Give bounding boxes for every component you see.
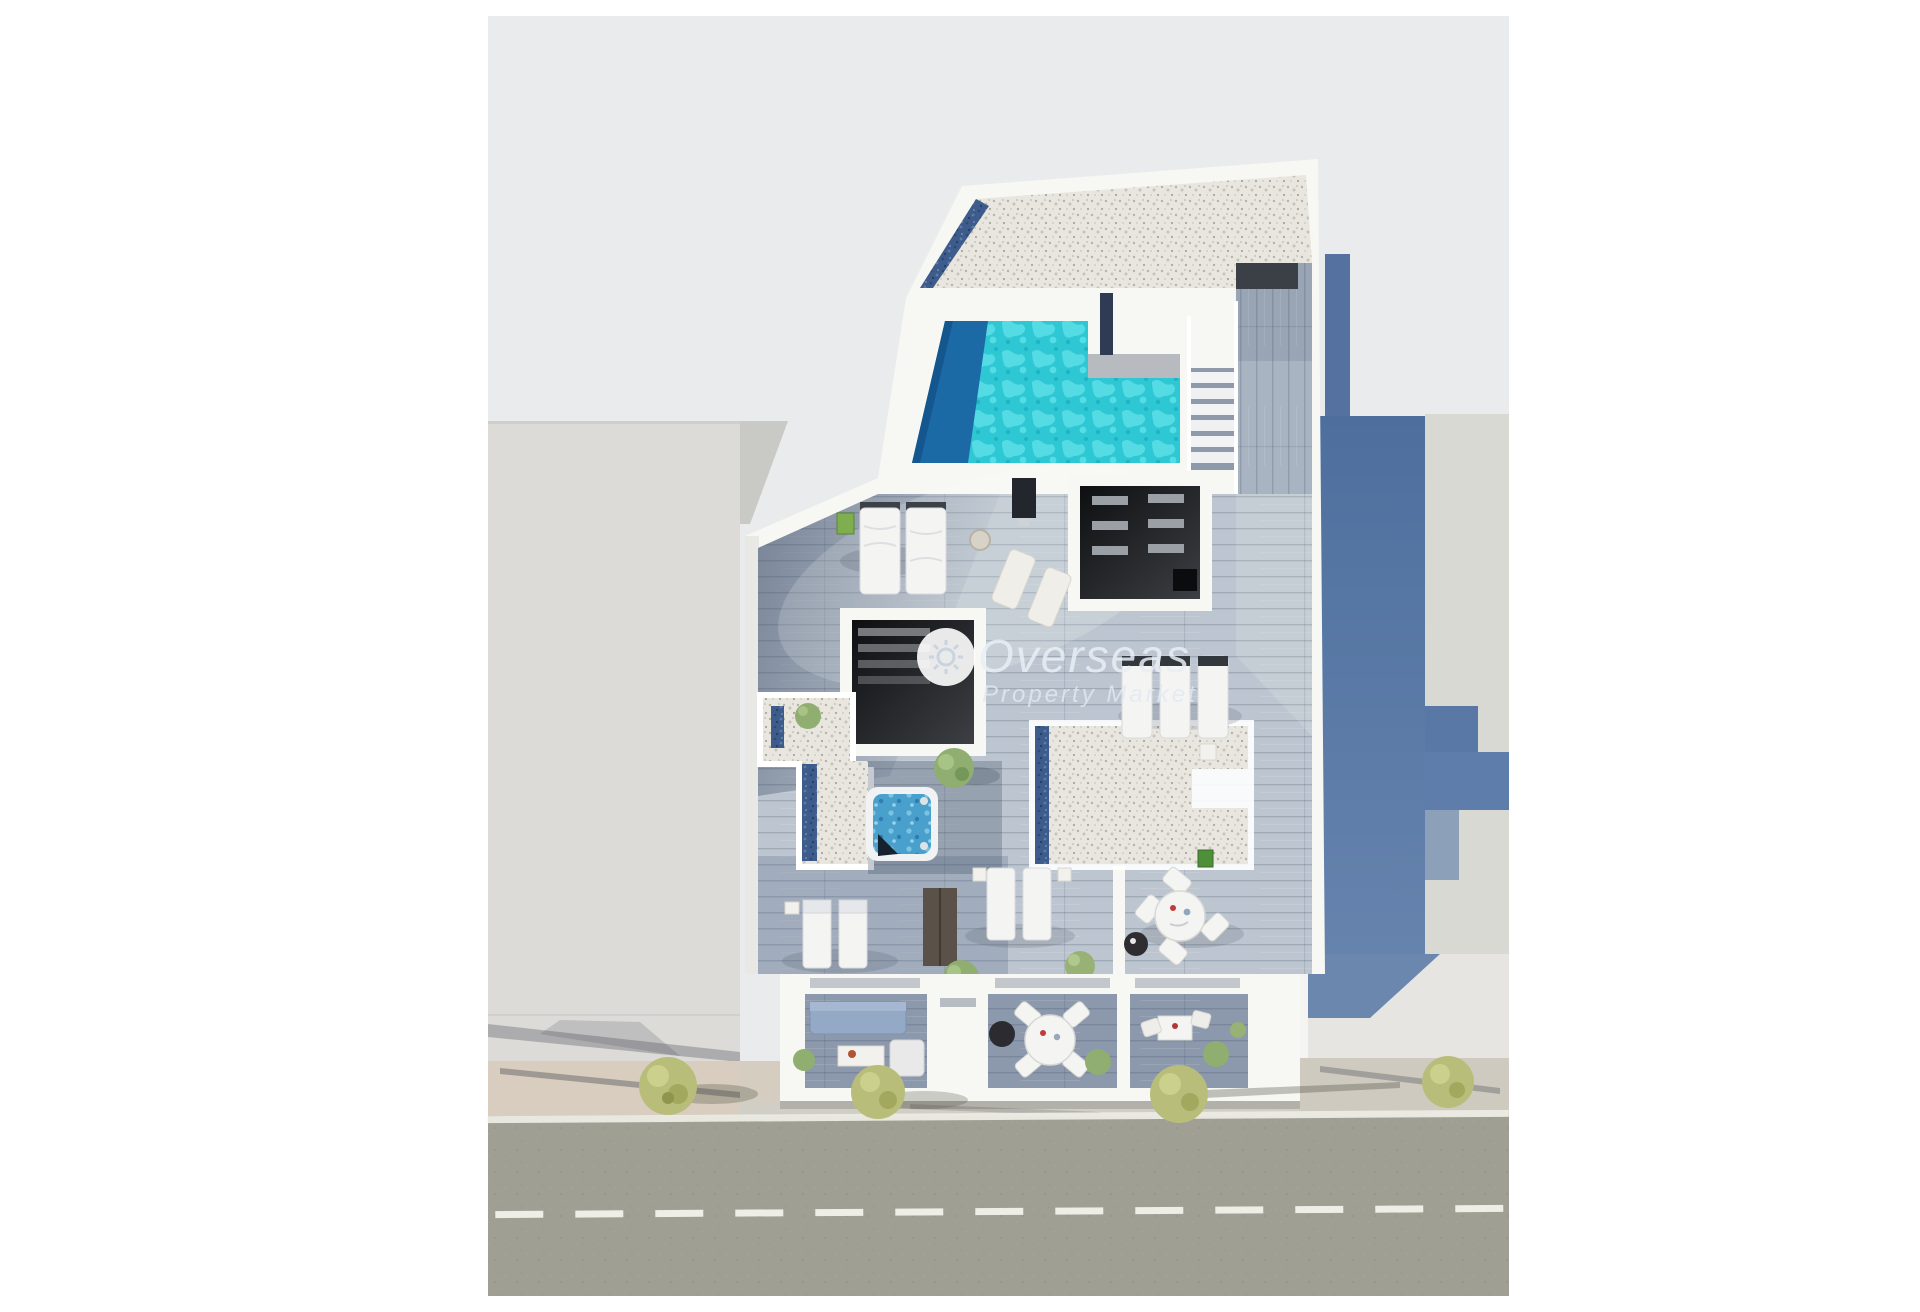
- side-table-cube: [1200, 744, 1216, 760]
- render-canvas: Overseas Property Market: [40, 16, 1920, 1296]
- side-table-round: [970, 530, 990, 550]
- tv-room: [840, 608, 986, 756]
- tv-panel: [1012, 478, 1036, 518]
- coffee-table: [838, 1046, 884, 1066]
- watermark-brand: Overseas: [978, 630, 1191, 682]
- skylight-room: [1068, 474, 1212, 611]
- lounge-chair: [890, 1040, 924, 1076]
- watermark-tagline: Property Market: [982, 681, 1198, 708]
- gravel-patio-right: [1029, 720, 1254, 870]
- dining-table-round: [1155, 891, 1205, 941]
- stair-railing: [1187, 316, 1191, 471]
- stairwell-doorway: [1236, 263, 1298, 289]
- property-floorplan-render: Overseas Property Market: [40, 16, 1920, 1296]
- neighbor-corner-block: [1300, 954, 1509, 1058]
- planter-box: [837, 513, 854, 534]
- deck-divider-wall: [1113, 866, 1125, 974]
- side-table-dark: [1124, 932, 1148, 956]
- staircore-door: [940, 998, 976, 1007]
- watermark-badge: [917, 628, 975, 686]
- pool-ledge-shadow: [1088, 354, 1180, 378]
